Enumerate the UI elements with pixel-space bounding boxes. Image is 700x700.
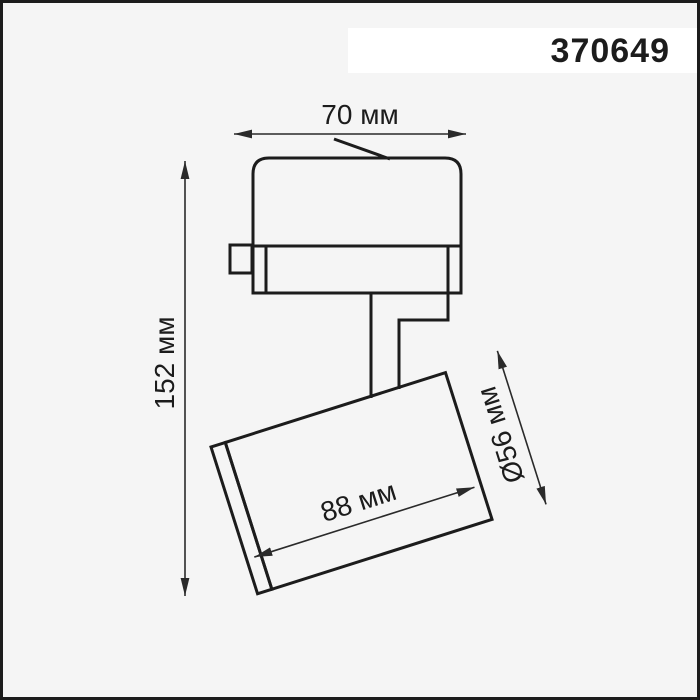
head-dimensions: 88 мм Ø56 мм [217, 351, 546, 593]
technical-drawing-page: 370649 [0, 0, 700, 700]
dim-length-label: 88 мм [317, 475, 400, 528]
track-adapter-body [253, 158, 461, 293]
spot-head [211, 373, 492, 594]
dimension-diagram: 70 мм 152 мм 88 мм Ø56 мм [0, 0, 700, 700]
adapter-side-tab [230, 245, 252, 273]
spot-head-rear-cap [211, 442, 272, 593]
spot-head-body [225, 373, 492, 590]
locking-lever-line [334, 139, 390, 159]
dim-width-label: 70 мм [321, 99, 398, 130]
dim-height-label: 152 мм [149, 317, 180, 410]
dim-diameter-label: Ø56 мм [471, 383, 531, 487]
